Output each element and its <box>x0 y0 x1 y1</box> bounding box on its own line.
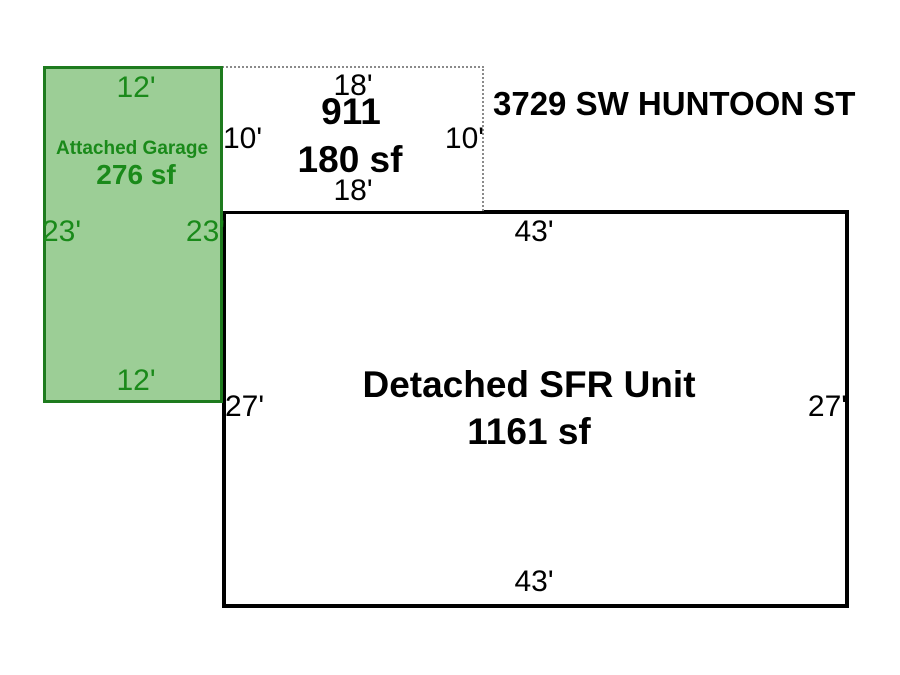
sfr-dim-bottom: 43' <box>514 567 553 597</box>
sfr-area-label: 1161 sf <box>467 413 590 450</box>
porch-name-label: 911 <box>321 93 381 130</box>
garage-dim-top: 12' <box>116 73 155 103</box>
detached-sfr-outline <box>222 210 849 608</box>
sfr-dim-top: 43' <box>514 217 553 247</box>
porch-dim-right: 10' <box>445 124 484 154</box>
porch-dim-left: 10' <box>223 124 262 154</box>
sfr-dim-left: 27' <box>225 392 264 422</box>
garage-area-label: 276 sf <box>96 161 175 189</box>
property-sketch: 12' Attached Garage 276 sf 23' 23' 12' 1… <box>0 0 900 675</box>
porch-dim-bottom: 18' <box>333 176 372 206</box>
garage-name-label: Attached Garage <box>56 139 208 158</box>
sfr-dim-right: 27' <box>808 392 847 422</box>
address-label: 3729 SW HUNTOON ST <box>493 87 855 120</box>
garage-dim-right: 23' <box>186 217 225 247</box>
garage-dim-bottom: 12' <box>116 366 155 396</box>
porch-area-label: 180 sf <box>298 141 403 178</box>
sfr-name-label: Detached SFR Unit <box>362 366 695 403</box>
garage-dim-left: 23' <box>42 217 81 247</box>
